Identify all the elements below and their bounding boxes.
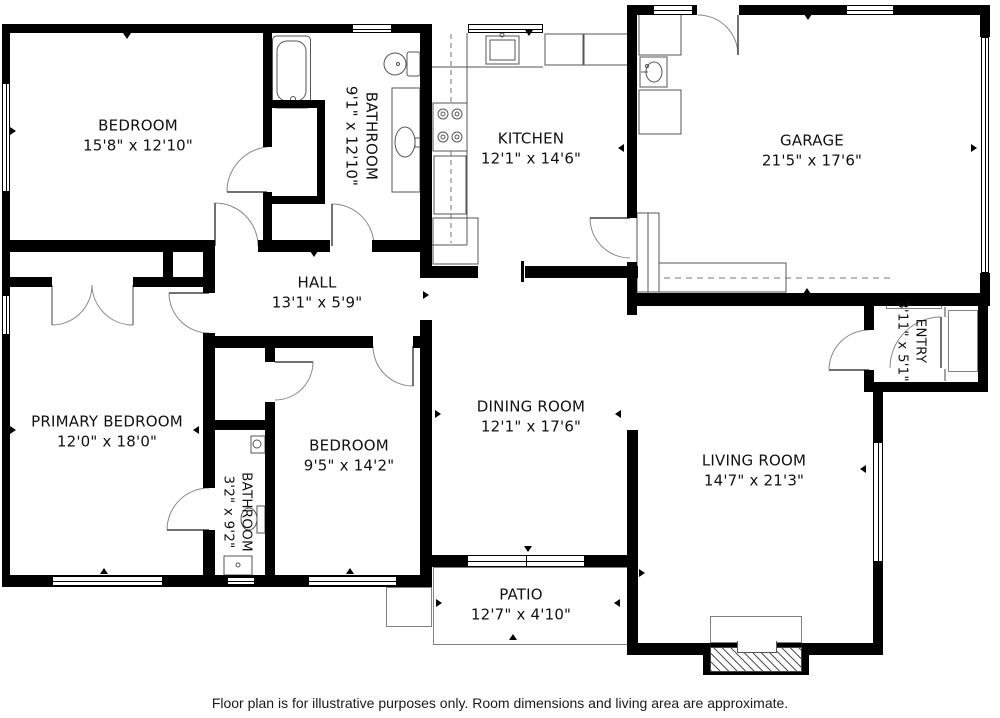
wall xyxy=(372,240,432,252)
wall xyxy=(420,320,432,577)
stoop-outline xyxy=(948,310,978,372)
room-name: DINING ROOM xyxy=(477,398,585,418)
wall xyxy=(809,643,883,655)
wall xyxy=(864,306,874,330)
dimension-marker xyxy=(10,127,16,135)
door-arc-closet-bifold xyxy=(52,285,133,325)
dimension-marker xyxy=(615,410,621,418)
room-dims: 14'7" x 21'3" xyxy=(702,471,806,491)
room-name: BEDROOM xyxy=(83,117,193,137)
door-arc-closet-bedroom2 xyxy=(275,362,313,400)
garage-step xyxy=(637,213,659,292)
dimension-marker xyxy=(310,251,318,257)
wall-end-cap xyxy=(521,261,524,282)
room-label-patio: PATIO 12'7" x 4'10" xyxy=(471,586,571,625)
dimension-marker xyxy=(639,569,645,577)
wall xyxy=(525,266,638,278)
dimension-marker xyxy=(804,14,812,20)
kitchen-sink-icon xyxy=(486,33,519,64)
wall xyxy=(133,277,213,287)
dimension-marker xyxy=(618,144,624,152)
room-label-kitchen: KITCHEN 12'1" x 14'6" xyxy=(481,130,581,169)
fireplace-firebox xyxy=(737,641,777,653)
room-name: KITCHEN xyxy=(481,130,581,150)
room-dims: 15'8" x 12'10" xyxy=(83,136,193,156)
window xyxy=(308,576,397,586)
wall xyxy=(203,252,215,293)
room-label-hall: HALL 13'1" x 5'9" xyxy=(272,274,363,313)
wall xyxy=(432,555,467,567)
cabinet-icon xyxy=(224,556,252,575)
room-name: GARAGE xyxy=(762,132,862,152)
wall xyxy=(627,15,637,218)
door-arc-hall-primary xyxy=(169,293,209,333)
window xyxy=(52,576,163,586)
door-arc-bathroom-main xyxy=(332,204,374,246)
utility-sink-icon xyxy=(640,57,667,87)
dimension-marker xyxy=(614,599,620,607)
room-label-bedroom-top: BEDROOM 15'8" x 12'10" xyxy=(83,117,193,156)
patio-steps xyxy=(386,587,432,627)
wall xyxy=(627,430,638,655)
wall xyxy=(864,382,988,392)
door-arc-primary-bathroom2 xyxy=(167,488,209,530)
wall xyxy=(163,248,173,277)
sliding-door xyxy=(467,555,585,567)
vanity-sink-icon xyxy=(392,88,420,192)
dimension-marker xyxy=(10,426,16,434)
dimension-marker xyxy=(971,144,977,152)
wall xyxy=(420,33,432,242)
washer-icon xyxy=(639,14,681,55)
room-name: ENTRY xyxy=(911,300,929,382)
room-label-primary-bedroom: PRIMARY BEDROOM 12'0" x 18'0" xyxy=(31,413,183,452)
room-label-entry: ENTRY 3'11" x 5'1" xyxy=(893,300,928,382)
wall xyxy=(203,530,215,577)
room-label-garage: GARAGE 21'5" x 17'6" xyxy=(762,132,862,171)
dishwasher-icon xyxy=(434,156,466,214)
room-dims: 12'1" x 17'6" xyxy=(477,417,585,437)
wall xyxy=(864,370,874,382)
room-dims: 12'7" x 4'10" xyxy=(471,605,571,625)
window xyxy=(352,24,392,33)
room-name: PRIMARY BEDROOM xyxy=(31,413,183,433)
wall xyxy=(203,348,215,488)
room-dims: 21'5" x 17'6" xyxy=(762,151,862,171)
wall xyxy=(980,15,990,37)
room-name: BATHROOM xyxy=(237,472,255,552)
wall xyxy=(978,293,988,392)
wall xyxy=(627,293,990,306)
room-dims: 9'1" x 12'10" xyxy=(342,86,362,186)
room-dims: 13'1" x 5'9" xyxy=(272,293,363,313)
wall xyxy=(2,277,52,287)
dimension-marker xyxy=(436,599,442,607)
workbench-icon xyxy=(659,263,893,292)
room-label-dining-room: DINING ROOM 12'1" x 17'6" xyxy=(477,398,585,437)
window xyxy=(2,83,10,192)
dimension-marker xyxy=(435,410,441,418)
room-dims: 3'11" x 5'1" xyxy=(893,300,911,382)
dimension-marker xyxy=(346,568,354,574)
stove-icon xyxy=(433,103,467,151)
room-label-bathroom-main: BATHROOM 9'1" x 12'10" xyxy=(342,86,381,186)
wall xyxy=(627,643,705,655)
dimension-marker xyxy=(525,30,533,36)
wall xyxy=(263,33,272,147)
bathtub-icon xyxy=(273,36,311,108)
hearth-outline xyxy=(710,616,802,643)
door-arc-bedroom-top xyxy=(215,203,258,246)
room-label-bathroom-2: BATHROOM 3'2" x 9'2" xyxy=(219,472,254,552)
room-dims: 12'0" x 18'0" xyxy=(31,432,183,452)
door-arc-entry-living xyxy=(829,330,869,370)
dimension-marker xyxy=(803,288,811,294)
window xyxy=(846,5,894,15)
dimension-marker xyxy=(123,33,131,39)
window xyxy=(873,442,883,562)
wall xyxy=(258,240,330,252)
wall xyxy=(413,336,432,348)
floor-plan: BEDROOM 15'8" x 12'10" BATHROOM 9'1" x 1… xyxy=(0,0,1000,718)
wall xyxy=(317,100,325,204)
dimension-marker xyxy=(423,291,429,299)
door-arc-hall-bedroom2 xyxy=(373,346,413,386)
dimension-marker xyxy=(193,426,199,434)
room-name: PATIO xyxy=(471,586,571,606)
window xyxy=(653,5,693,15)
room-dims: 3'2" x 9'2" xyxy=(219,472,237,552)
garage-door xyxy=(981,37,989,273)
dryer-icon xyxy=(639,90,681,134)
corner-sink-icon xyxy=(251,436,265,453)
door-arc-kitchen-garage xyxy=(590,218,630,258)
wall xyxy=(585,555,638,567)
refrigerator-icon xyxy=(545,34,628,65)
wall xyxy=(265,348,275,362)
room-label-living-room: LIVING ROOM 14'7" x 21'3" xyxy=(702,452,806,491)
wall xyxy=(2,240,215,252)
room-dims: 9'5" x 14'2" xyxy=(304,456,395,476)
wall xyxy=(263,196,325,204)
wall xyxy=(432,266,478,278)
room-name: BEDROOM xyxy=(304,437,395,457)
dimension-marker xyxy=(100,568,108,574)
wall xyxy=(203,336,373,348)
disclaimer-text: Floor plan is for illustrative purposes … xyxy=(0,695,1000,711)
wall xyxy=(203,420,275,430)
dimension-marker xyxy=(524,546,532,552)
door-arc-bedroom-bathroom xyxy=(227,147,267,192)
toilet-icon xyxy=(384,52,420,76)
room-label-bedroom-2: BEDROOM 9'5" x 14'2" xyxy=(304,437,395,476)
wall xyxy=(263,100,325,108)
dimension-marker xyxy=(509,634,517,640)
window xyxy=(2,295,10,335)
door-arc-garage-service xyxy=(698,15,738,55)
room-dims: 12'1" x 14'6" xyxy=(481,149,581,169)
room-name: LIVING ROOM xyxy=(702,452,806,472)
room-name: HALL xyxy=(272,274,363,294)
window xyxy=(227,577,255,585)
dimension-marker xyxy=(860,465,866,473)
room-name: BATHROOM xyxy=(361,86,381,186)
